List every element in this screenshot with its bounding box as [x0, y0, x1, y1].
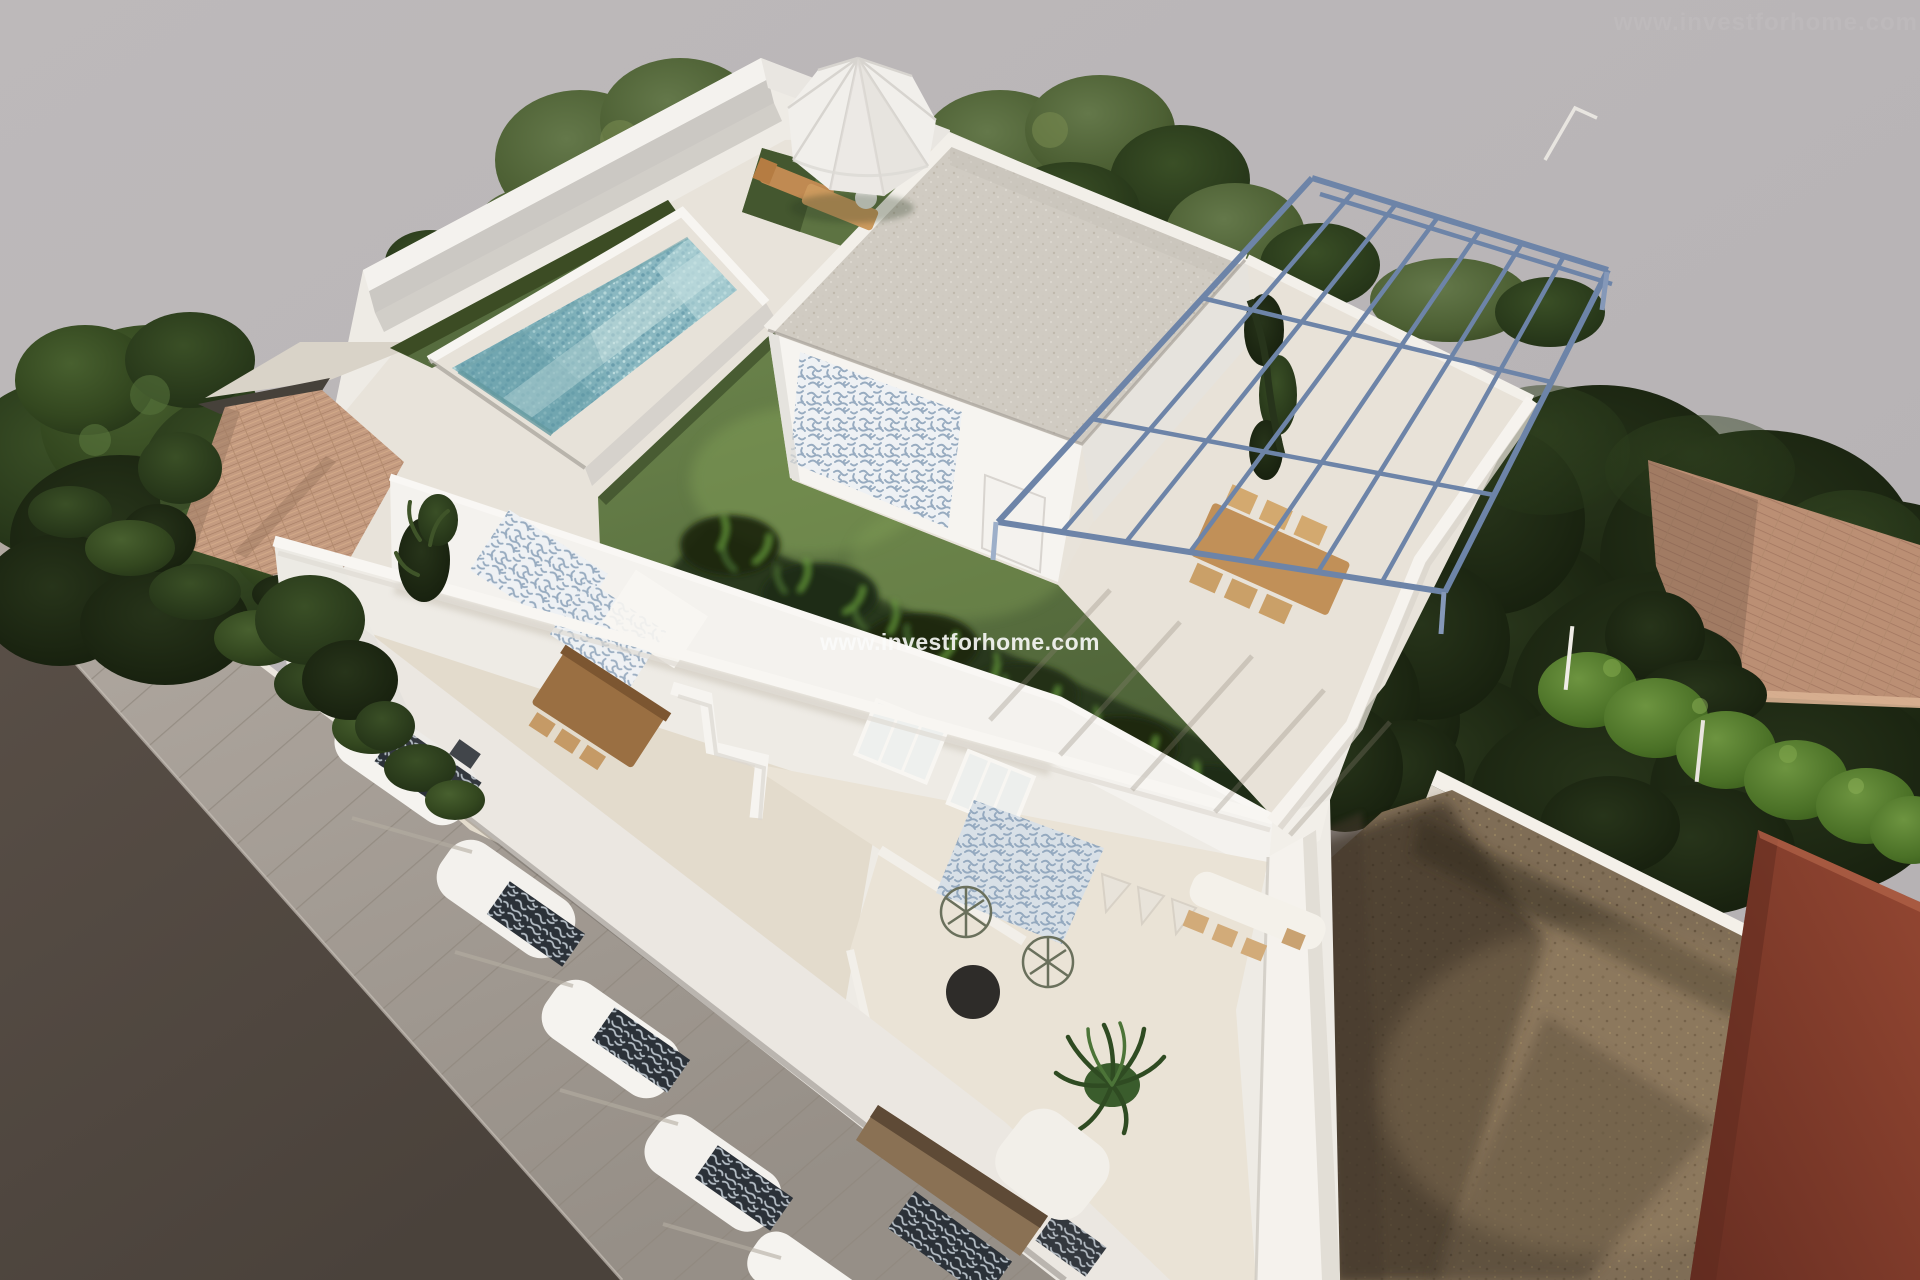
svg-text:www.investforhome.com: www.investforhome.com [819, 629, 1100, 655]
svg-text:www.investforhome.com: www.investforhome.com [1613, 9, 1918, 36]
